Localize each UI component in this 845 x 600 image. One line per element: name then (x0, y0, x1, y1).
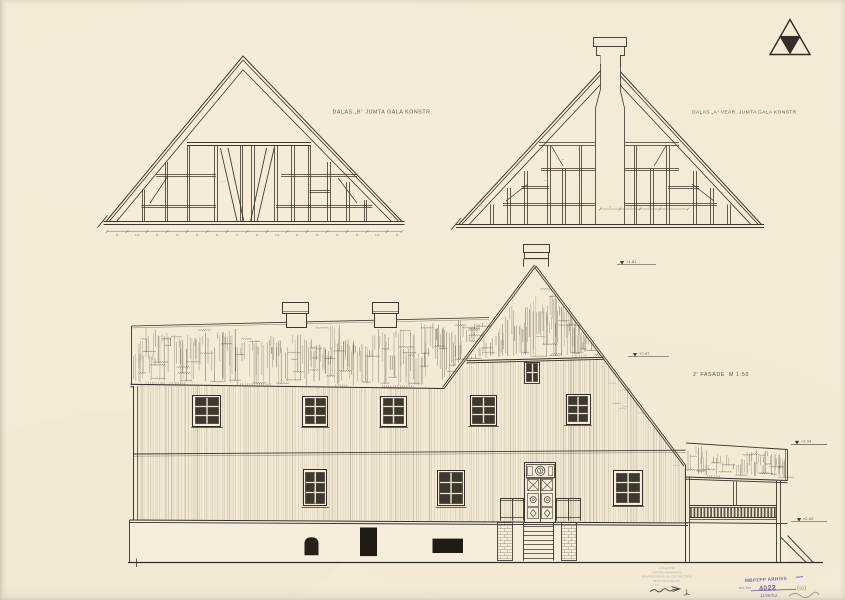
svg-text:1.40: 1.40 (135, 235, 140, 237)
svg-text:Nr. ___________: Nr. ___________ (656, 583, 679, 587)
svg-text:ARHITEKTŪRAS UN CELTNIECĪBAS: ARHITEKTŪRAS UN CELTNIECĪBAS (642, 575, 693, 579)
svg-text:+2.97: +2.97 (639, 352, 650, 356)
svg-text:DAĻAS „B“ JUMTA GALA KONSTR.: DAĻAS „B“ JUMTA GALA KONSTR. (333, 110, 433, 116)
svg-text:1198/52: 1198/52 (760, 593, 778, 598)
svg-text:(ω): (ω) (797, 586, 806, 592)
svg-text:4022: 4022 (759, 584, 777, 592)
svg-text:DAĻAS „A“ VEĀR. JUMTA GALA KON: DAĻAS „A“ VEĀR. JUMTA GALA KONSTR. (692, 109, 798, 116)
svg-text:±0.00: ±0.00 (803, 517, 813, 521)
svg-text:Latvijas PSR: Latvijas PSR (659, 567, 675, 570)
svg-text:+2.04: +2.04 (801, 440, 812, 444)
svg-text:M 1:50: M 1:50 (729, 372, 749, 378)
svg-text:1.40: 1.40 (375, 235, 380, 237)
svg-text:2′ FASĀDE: 2′ FASĀDE (693, 371, 725, 378)
svg-text:+4.81: +4.81 (626, 260, 637, 264)
svg-text:Inv. Nʊ: Inv. Nʊ (739, 586, 751, 590)
svg-text:1.40: 1.40 (275, 235, 280, 237)
svg-text:INSTITŪTA ARHĪVS: INSTITŪTA ARHĪVS (653, 579, 680, 583)
